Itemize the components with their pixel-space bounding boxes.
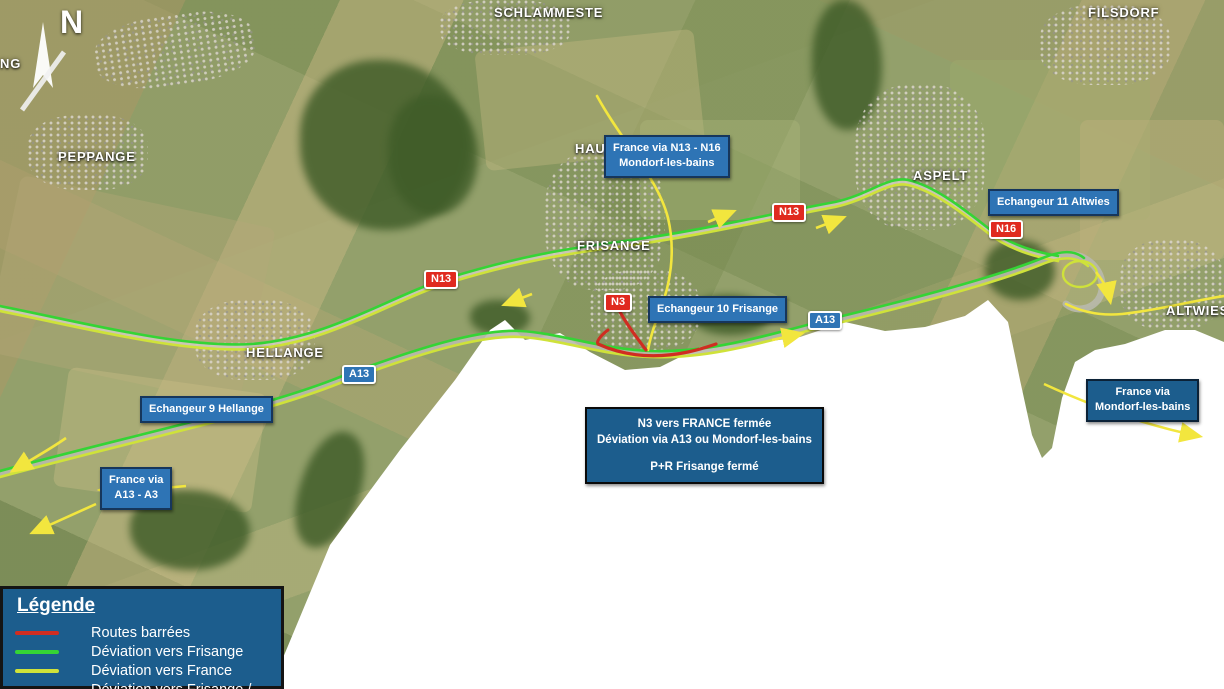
info-line: France via xyxy=(109,473,163,488)
north-compass: N xyxy=(12,2,102,117)
info-box-echangeur-11: Echangeur 11 Altwies xyxy=(988,189,1119,216)
road-badge-n3: N3 xyxy=(604,293,632,312)
info-line: Mondorf-les-bains xyxy=(613,156,721,171)
info-line: A13 - A3 xyxy=(109,488,163,503)
place-label-frisange: FRISANGE xyxy=(577,238,651,253)
road-badge-n13-east: N13 xyxy=(772,203,806,222)
arrow-yellow xyxy=(34,504,96,532)
north-arrow-icon xyxy=(16,22,76,114)
deviation-a13-green xyxy=(0,252,1084,471)
info-box-france-mondorf: France via Mondorf-les-bains xyxy=(1086,379,1199,422)
legend-item-label: Déviation vers France xyxy=(91,663,232,679)
place-label-filsdorf: FILSDORF xyxy=(1088,5,1159,20)
info-box-france-a13-a3: France via A13 - A3 xyxy=(100,467,172,510)
info-line-spacer xyxy=(597,448,812,459)
road-n13-base xyxy=(0,181,1058,346)
arrow-yellow xyxy=(506,294,532,304)
info-box-echangeur-10: Echangeur 10 Frisange xyxy=(648,296,787,323)
info-line: France via N13 - N16 xyxy=(613,141,721,156)
info-line: France via xyxy=(1095,385,1190,400)
place-label-hau: HAU xyxy=(575,141,606,156)
road-a13-base xyxy=(0,255,1102,475)
legend-swatch-france xyxy=(15,669,59,673)
deviation-a13-yellow xyxy=(0,258,1088,477)
info-line: Déviation via A13 ou Mondorf-les-bains xyxy=(597,432,812,448)
road-badge-n16: N16 xyxy=(989,220,1023,239)
place-label-peppange: PEPPANGE xyxy=(58,149,136,164)
arrow-yellow xyxy=(816,218,842,228)
legend-swatch-frisange xyxy=(15,650,59,654)
map-canvas: N PEPPANGE SCHLAMMESTE HAU FRISANGE ASPE… xyxy=(0,0,1224,689)
place-label-aspelt: ASPELT xyxy=(913,168,968,183)
place-label-hellange: HELLANGE xyxy=(246,345,324,360)
place-label-altwies: ALTWIES xyxy=(1166,303,1224,318)
route-closed-ramp xyxy=(597,330,608,344)
info-line: Mondorf-les-bains xyxy=(1095,400,1190,415)
echangeur11-loop xyxy=(1063,261,1097,287)
place-label-edge-partial: NG xyxy=(0,56,21,71)
info-box-closure: N3 vers FRANCE fermée Déviation via A13 … xyxy=(585,407,824,484)
legend-item-deviation-mixed: Déviation vers Frisange / France xyxy=(15,682,269,689)
road-badge-n13-west: N13 xyxy=(424,270,458,289)
legend-item-label: Déviation vers Frisange / France xyxy=(91,682,269,689)
legend-item-deviation-france: Déviation vers France xyxy=(15,663,269,679)
legend-swatch-closed xyxy=(15,631,59,635)
legend-title: Légende xyxy=(17,595,269,617)
legend-item-deviation-frisange: Déviation vers Frisange xyxy=(15,644,269,660)
arrow-yellow xyxy=(708,212,732,222)
road-badge-a13-east: A13 xyxy=(808,311,842,330)
deviation-n13-yellow xyxy=(0,184,1058,349)
info-box-france-n13-n16: France via N13 - N16 Mondorf-les-bains xyxy=(604,135,730,178)
info-box-echangeur-9: Echangeur 9 Hellange xyxy=(140,396,273,423)
legend-item-label: Routes barrées xyxy=(91,625,190,641)
info-line: N3 vers FRANCE fermée xyxy=(597,416,812,432)
legend-panel: Légende Routes barrées Déviation vers Fr… xyxy=(0,586,284,689)
place-label-schlammeste: SCHLAMMESTE xyxy=(494,5,603,20)
legend-item-label: Déviation vers Frisange xyxy=(91,644,243,660)
road-badge-a13-west: A13 xyxy=(342,365,376,384)
legend-item-routes-barrees: Routes barrées xyxy=(15,625,269,641)
info-line: P+R Frisange fermé xyxy=(597,459,812,475)
